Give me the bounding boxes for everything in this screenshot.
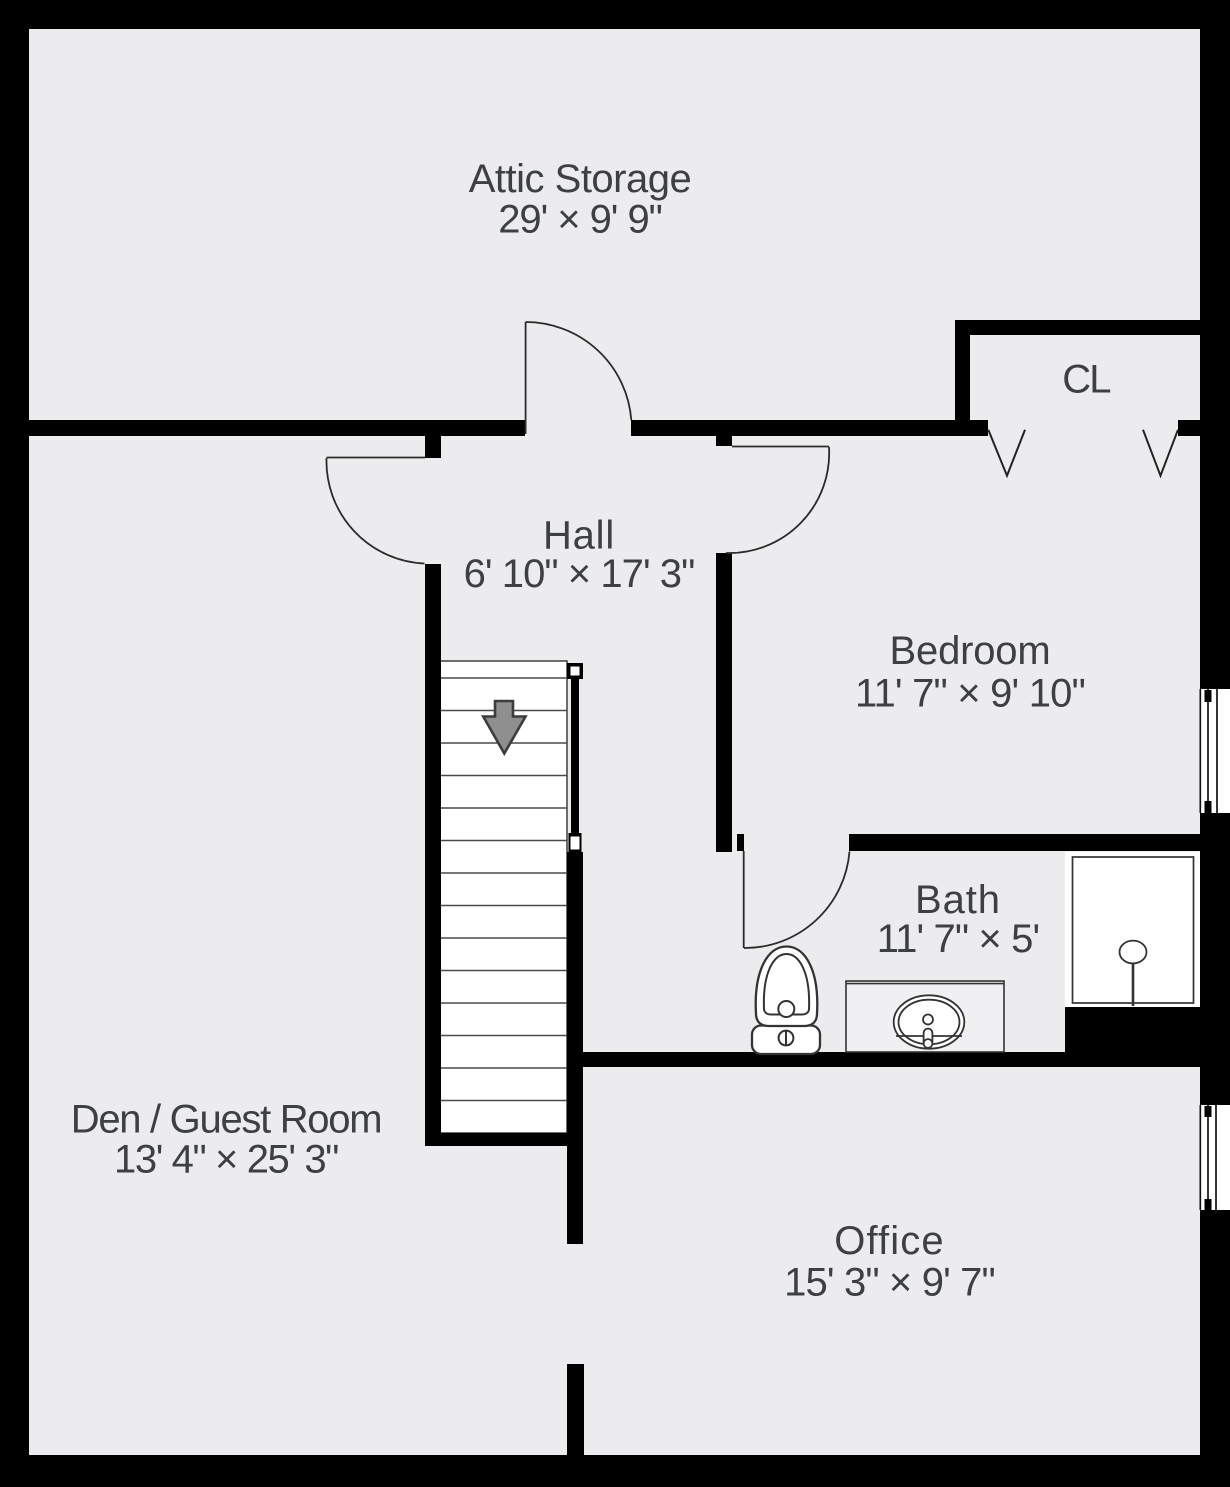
svg-text:Office: Office [834,1219,945,1263]
svg-text:29' × 9' 9": 29' × 9' 9" [498,197,662,241]
svg-text:Bath: Bath [915,878,1001,922]
svg-text:11' 7" × 5': 11' 7" × 5' [877,917,1040,961]
svg-text:Bedroom: Bedroom [890,629,1051,673]
svg-text:Den / Guest Room: Den / Guest Room [71,1097,381,1141]
svg-text:CL: CL [1062,358,1110,402]
svg-text:Attic Storage: Attic Storage [469,157,692,201]
svg-text:13' 4" × 25' 3": 13' 4" × 25' 3" [114,1138,338,1182]
svg-text:Hall: Hall [543,513,615,557]
svg-text:11' 7" × 9' 10": 11' 7" × 9' 10" [855,671,1085,715]
svg-text:6' 10" × 17' 3": 6' 10" × 17' 3" [464,552,695,596]
svg-text:15' 3" × 9' 7": 15' 3" × 9' 7" [784,1260,995,1304]
